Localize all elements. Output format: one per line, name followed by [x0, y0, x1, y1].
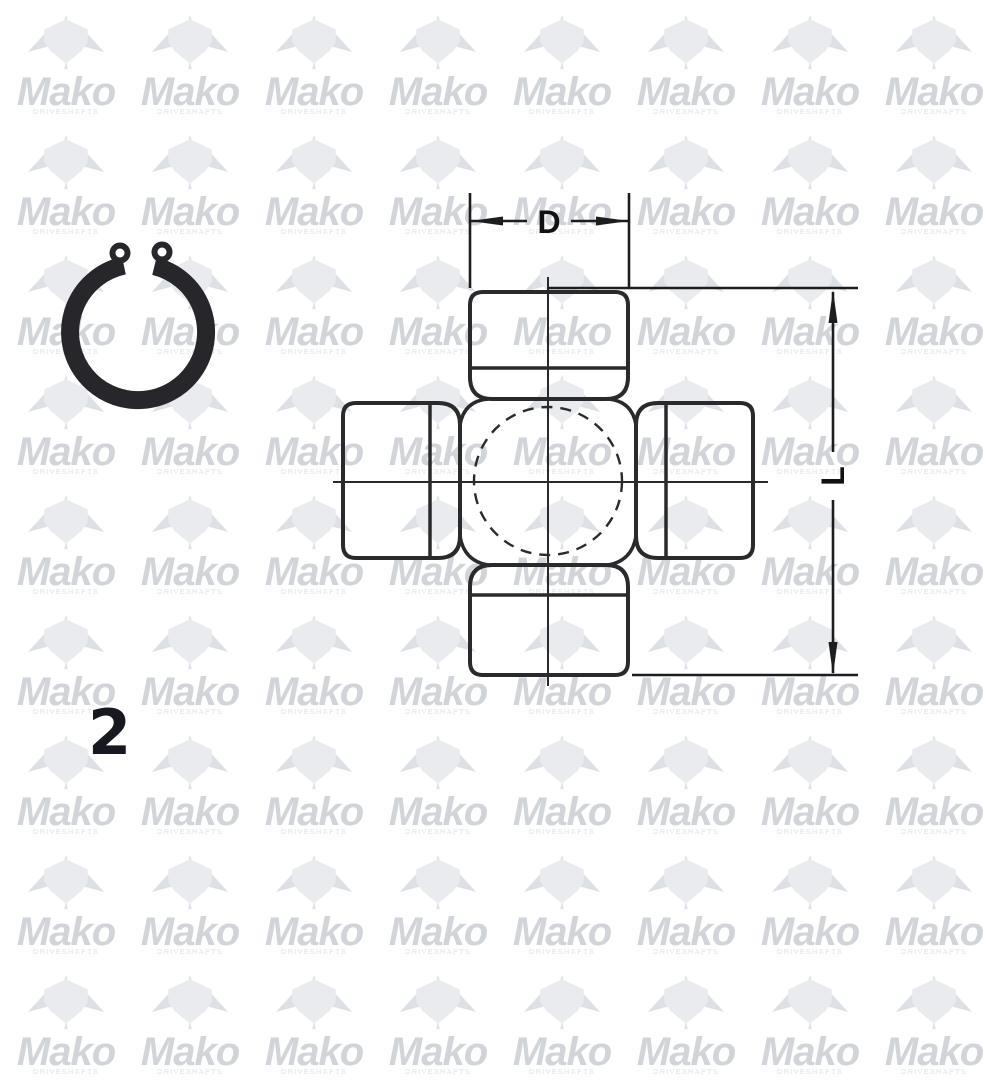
watermark-brand-text: Mako	[624, 1035, 748, 1069]
product-image-page: { "page": { "background": "#ffffff" }, "…	[0, 0, 1000, 1000]
snap-ring	[70, 242, 206, 401]
snap-ring-lug-right-hole	[158, 248, 167, 257]
watermark-brand-text: Mako	[128, 1035, 252, 1069]
snap-ring-body	[70, 266, 206, 401]
l-arrowhead-top	[829, 290, 838, 323]
left-bearing-cap	[343, 403, 460, 558]
ujoint-figure: D L	[0, 0, 1000, 1000]
d-arrowhead-right	[596, 217, 629, 226]
dim-l-label: L	[815, 466, 851, 486]
fillet-top-right	[608, 399, 636, 425]
watermark-brand-text: Mako	[500, 1035, 624, 1069]
watermark-brand-text: Mako	[4, 1035, 128, 1069]
fillet-bottom-left	[460, 536, 488, 565]
dim-d-label: D	[537, 204, 560, 240]
watermark-brand-text: Mako	[748, 1035, 872, 1069]
watermark-brand-text: Mako	[872, 1035, 996, 1069]
part-index-number: 2	[88, 702, 131, 764]
snap-ring-lug-left-hole	[116, 249, 125, 258]
fillet-bottom-right	[608, 536, 636, 565]
dimension-d: D	[470, 193, 629, 288]
fillet-top-left	[460, 399, 488, 425]
u-joint-drawing	[333, 277, 768, 686]
right-bearing-cap	[636, 403, 753, 558]
l-arrowhead-bottom	[829, 642, 838, 675]
watermark-brand-text: Mako	[252, 1035, 376, 1069]
d-arrowhead-left	[470, 217, 503, 226]
watermark-brand-text: Mako	[376, 1035, 500, 1069]
